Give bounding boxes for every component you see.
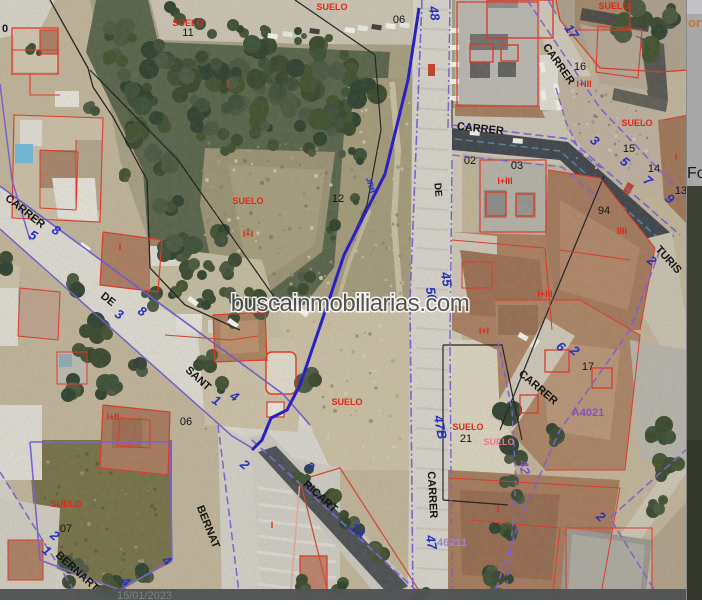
svg-text:SUELO: SUELO <box>483 437 514 447</box>
svg-text:11: 11 <box>182 27 193 39</box>
svg-text:I+I: I+I <box>243 229 253 239</box>
svg-text:SUELO: SUELO <box>452 422 483 432</box>
svg-text:12: 12 <box>332 193 344 205</box>
svg-text:06: 06 <box>393 14 405 26</box>
svg-text:15/01/2023: 15/01/2023 <box>117 590 172 600</box>
svg-text:16: 16 <box>574 61 586 73</box>
svg-text:I+I: I+I <box>479 326 489 336</box>
svg-text:I: I <box>119 242 122 252</box>
svg-text:06: 06 <box>180 416 192 428</box>
svg-text:I+III: I+III <box>497 176 512 186</box>
svg-text:A4021: A4021 <box>572 407 604 419</box>
svg-text:IIII: IIII <box>617 226 627 236</box>
svg-text:I: I <box>227 80 230 90</box>
svg-text:I: I <box>497 504 500 514</box>
svg-text:CARRER: CARRER <box>425 471 439 519</box>
svg-text:46211: 46211 <box>437 537 467 549</box>
svg-text:SUELO: SUELO <box>598 1 629 11</box>
svg-text:03: 03 <box>511 160 523 172</box>
svg-text:I+III: I+III <box>576 79 591 89</box>
svg-text:SUELO: SUELO <box>232 196 263 206</box>
svg-text:I+II: I+II <box>107 412 120 422</box>
svg-text:07: 07 <box>60 523 72 535</box>
svg-text:SUELO: SUELO <box>50 499 81 509</box>
svg-text:buscainmobiliarias.com: buscainmobiliarias.com <box>231 290 469 317</box>
svg-text:02: 02 <box>464 155 476 167</box>
svg-text:SUELO: SUELO <box>316 2 347 12</box>
svg-text:SUELO: SUELO <box>621 118 652 128</box>
svg-text:I: I <box>675 152 678 162</box>
svg-text:SUELO: SUELO <box>331 397 362 407</box>
svg-text:15: 15 <box>623 143 635 155</box>
svg-text:21: 21 <box>460 433 472 445</box>
svg-text:17: 17 <box>582 361 594 373</box>
svg-text:I+III: I+III <box>537 289 552 299</box>
svg-text:SUELO: SUELO <box>172 18 203 28</box>
svg-text:I: I <box>271 520 274 530</box>
svg-text:orm: orm <box>688 15 702 30</box>
svg-text:94: 94 <box>598 205 610 217</box>
svg-text:Fol: Fol <box>687 165 702 182</box>
svg-text:0: 0 <box>2 23 8 35</box>
svg-text:DE: DE <box>431 182 443 197</box>
